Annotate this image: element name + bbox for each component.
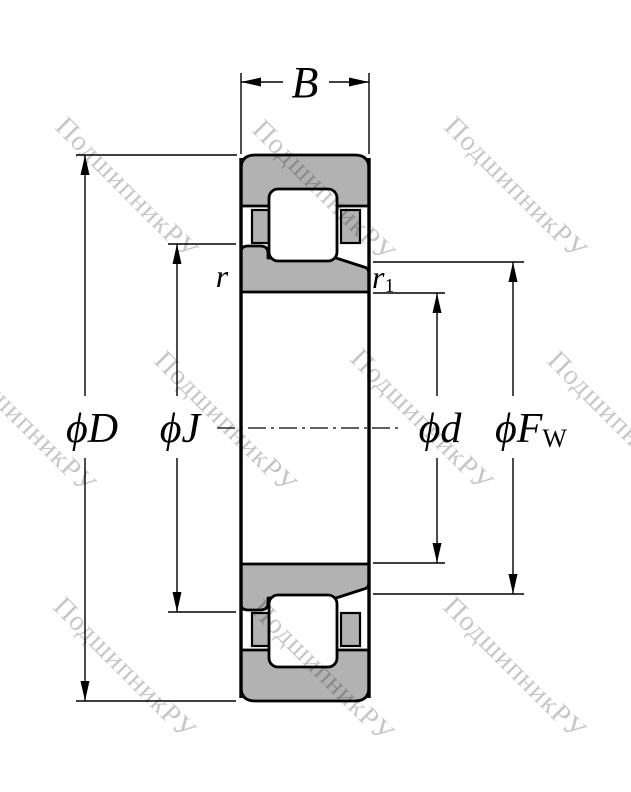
label-r: r bbox=[216, 258, 229, 294]
label-phi-D: ϕD bbox=[66, 406, 118, 452]
watermark-text: ПодшипникРУ bbox=[49, 111, 204, 266]
label-B: B bbox=[292, 58, 319, 107]
arrowhead-right bbox=[349, 78, 369, 87]
bearing-drawing: B ϕD ϕJ bbox=[0, 0, 631, 792]
arrowhead-down bbox=[81, 681, 90, 701]
dimension-phi-Fw: ϕFW bbox=[373, 262, 567, 594]
bearing-drawing-svg: B ϕD ϕJ bbox=[0, 0, 631, 792]
arrowhead-left bbox=[241, 78, 261, 87]
watermark-text: ПодшипникРУ bbox=[438, 111, 593, 266]
arrowhead-down bbox=[509, 574, 518, 594]
watermark-text: ПодшипникРУ bbox=[541, 345, 631, 500]
label-phi-Fw: ϕFW bbox=[495, 406, 567, 453]
arrowhead-down bbox=[173, 592, 182, 612]
arrowhead-down bbox=[433, 543, 442, 563]
watermark-text: ПодшипникРУ bbox=[437, 591, 592, 746]
arrowhead-up bbox=[509, 262, 518, 282]
arrowhead-up bbox=[433, 293, 442, 313]
watermark-text: ПодшипникРУ bbox=[47, 591, 202, 746]
cage-bar bbox=[341, 613, 360, 646]
